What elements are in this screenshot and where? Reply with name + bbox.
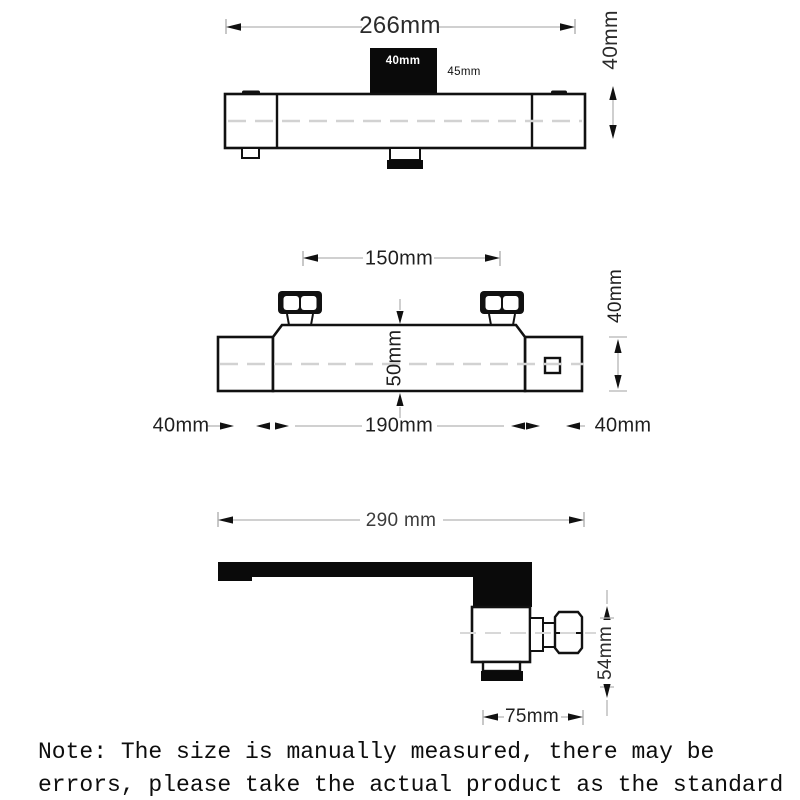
diagram-linework [0, 0, 800, 800]
spout-silhouette [218, 562, 532, 607]
dim-label-end-block-height: 40mm [605, 269, 627, 323]
dim-label-body-width: 190mm [365, 415, 433, 438]
dimension-diagram-page: 266mm 40mm 40mm 45mm 150mm 40mm 50mm 40m… [0, 0, 800, 800]
arrow-right-icon [485, 254, 500, 262]
note-line-2: errors, please take the actual product a… [38, 772, 783, 798]
side-port [530, 618, 543, 651]
note-line-1: Note: The size is manually measured, the… [38, 739, 714, 765]
left-foot [242, 148, 259, 158]
arrow-right-icon [560, 23, 575, 31]
hex-nut-right [480, 291, 524, 325]
arrow-left-icon [218, 516, 233, 523]
dim-label-bar-height: 40mm [599, 10, 623, 70]
dim-label-valve-width: 75mm [505, 706, 559, 728]
arrow-right-icon [275, 422, 289, 429]
arrow-left-icon [483, 713, 498, 720]
bottom-view-drawing [218, 512, 614, 725]
dim-label-inlet-spacing: 150mm [365, 248, 433, 271]
dim-label-left-end-width: 40mm [153, 415, 210, 438]
bottom-outlet [390, 148, 420, 160]
port-connector [543, 623, 555, 647]
top-view-drawing [225, 19, 617, 169]
left-mount-tab [242, 91, 260, 95]
dim-label-overall-width: 266mm [359, 12, 441, 40]
set-screw-square [545, 358, 560, 373]
arrow-left-icon [511, 422, 525, 429]
dim-label-right-end-width: 40mm [595, 415, 652, 438]
arrow-left-icon [256, 422, 270, 429]
arrow-right-icon [568, 713, 583, 720]
dim-label-handle-depth: 45mm [447, 66, 480, 78]
arrow-left-icon [566, 422, 580, 429]
dim-label-spout-reach: 290 mm [366, 510, 436, 532]
dim-40mm-bar-height [609, 86, 616, 139]
bottom-outlet-cap [387, 160, 423, 169]
measurement-note: Note: The size is manually measured, the… [38, 736, 783, 800]
arrow-right-icon [220, 422, 234, 429]
arrow-down-icon [609, 125, 616, 139]
arrow-right-icon [526, 422, 540, 429]
arrow-up-icon [609, 86, 616, 100]
outlet-neck [483, 662, 520, 671]
hex-nut-left [278, 291, 322, 325]
arrow-right-icon [569, 516, 584, 523]
arrow-down-icon [396, 311, 403, 324]
arrow-down-icon [614, 375, 621, 389]
arrow-up-icon [396, 393, 403, 406]
dim-label-valve-height: 54mm [595, 626, 617, 680]
dim-label-handle-width: 40mm [386, 55, 420, 67]
arrow-left-icon [226, 23, 241, 31]
right-mount-tab [551, 91, 567, 95]
arrow-up-icon [614, 339, 621, 353]
valve-housing [472, 607, 530, 662]
dim-label-body-height: 50mm [384, 330, 407, 387]
dim-40mm-end-height [609, 337, 627, 391]
middle-view-drawing [207, 251, 627, 430]
outlet-cap [481, 671, 523, 681]
arrow-left-icon [303, 254, 318, 262]
arrow-down-icon [603, 684, 610, 698]
